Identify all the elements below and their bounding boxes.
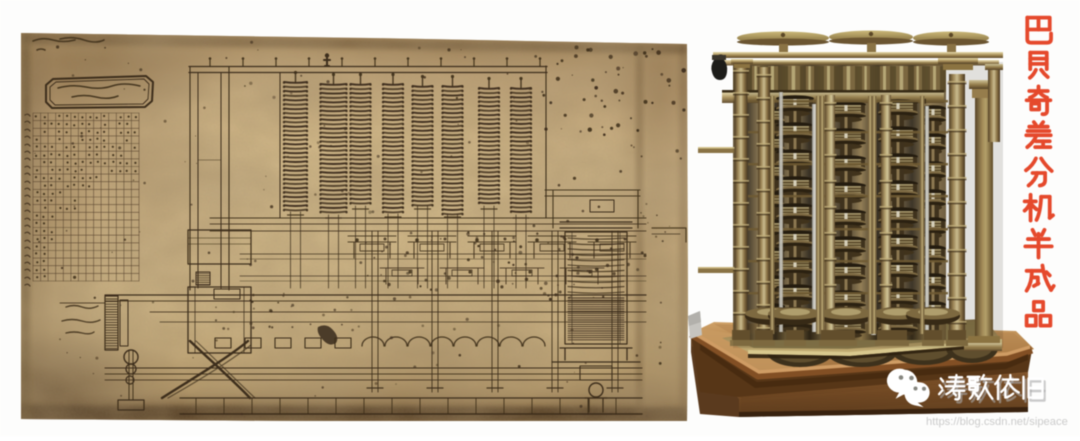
svg-text:https://blog.csdn.net/sipeace: https://blog.csdn.net/sipeace: [926, 416, 1068, 428]
